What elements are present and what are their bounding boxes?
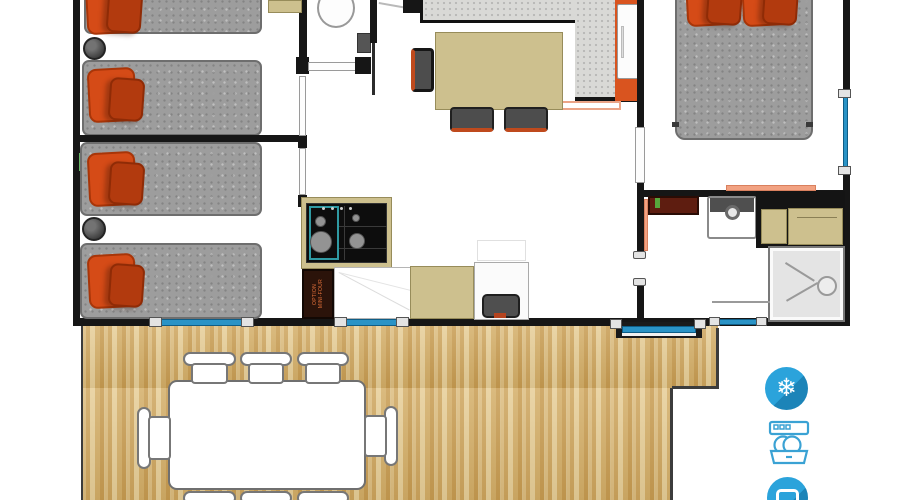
- window-kitchen-cap-r: [396, 317, 409, 327]
- entry-door-swing: [379, 2, 405, 8]
- bedroom1-door: [299, 76, 306, 136]
- vanity-door-left: [761, 209, 787, 244]
- window-bedroom2: [158, 319, 247, 326]
- pillow-bed-4: [88, 252, 146, 312]
- vanity-door-right: [788, 208, 843, 245]
- sink-handle: [494, 313, 506, 318]
- tv-icon: [767, 477, 808, 500]
- vanity-drawer-line: [797, 217, 837, 218]
- bathroom-door-jamb-1: [633, 251, 646, 259]
- master-pillow-left: [686, 0, 744, 30]
- stove-knob-2: [331, 207, 334, 210]
- bathroom-wall-upper: [637, 197, 644, 253]
- pillow-bed-1: [86, 0, 144, 38]
- entrance-sill: [622, 333, 696, 336]
- terrace-table: [168, 380, 366, 490]
- bedroom2-door: [299, 148, 306, 195]
- floor-plan: OPTION MINI-FOUR: [0, 0, 900, 500]
- snowflake-glyph: ❄: [776, 376, 797, 401]
- deck-edge-step: [672, 386, 719, 389]
- window-bathroom-cap-l: [709, 317, 720, 326]
- dining-chair-left: [411, 48, 434, 92]
- fridge-handle: [621, 26, 624, 58]
- deck-edge-left: [81, 326, 83, 500]
- terrace-chair-bottom-2: [240, 491, 292, 500]
- corridor-wall-node: [298, 136, 307, 148]
- master-bed-foot-left: [672, 122, 679, 127]
- stove-knob-1: [322, 207, 325, 210]
- sink-outline: [477, 240, 526, 261]
- burner-4: [349, 233, 365, 249]
- entrance-cap-r: [694, 319, 706, 329]
- dining-chair-bottom-1: [450, 107, 494, 132]
- dishwasher-icon: [766, 420, 812, 465]
- window-bedroom2-cap-l: [149, 317, 162, 327]
- pillow-bed-2: [88, 66, 146, 126]
- window-bathroom: [716, 319, 761, 325]
- terrace-chair-right: [364, 406, 398, 466]
- air-conditioning-icon: ❄: [765, 367, 808, 410]
- deck-edge-right-upper: [716, 328, 719, 388]
- deck-edge-right-lower: [670, 388, 673, 500]
- kitchen-counter-top: [420, 0, 578, 23]
- master-wall-node: [637, 183, 644, 197]
- burner-3: [352, 214, 360, 222]
- bedside-stool-2: [82, 217, 106, 241]
- entrance-cap-l: [610, 319, 622, 329]
- master-door: [635, 127, 645, 183]
- bathroom-shelf-plant: [655, 198, 660, 208]
- wc-sliding-door: [308, 62, 357, 71]
- option-label-1: OPTION: [313, 284, 318, 305]
- dining-table: [435, 32, 563, 110]
- washbasin-faucet: [725, 205, 740, 220]
- terrace-chair-bottom-1: [183, 491, 236, 500]
- hall-wardrobe: [268, 0, 302, 13]
- window-bathroom-cap-r: [756, 317, 767, 326]
- terrace-chair-left: [137, 407, 171, 469]
- wc-partition: [372, 43, 375, 95]
- cooktop-grid-h1: [339, 226, 387, 227]
- bathroom-wall-lower: [637, 286, 644, 320]
- option-label-2: MINI-FOUR: [319, 279, 324, 308]
- window-kitchen: [342, 319, 401, 326]
- kitchen-counter-bottom: [410, 266, 474, 319]
- kitchen-wall-stub: [403, 0, 420, 13]
- shower-drain: [817, 276, 837, 296]
- option-mini-oven: OPTION MINI-FOUR: [302, 269, 334, 319]
- master-bed-foot-right: [806, 122, 813, 127]
- wc-wall-right: [370, 0, 377, 43]
- burner-2: [310, 231, 332, 253]
- shower-screen: [712, 301, 770, 303]
- burner-1: [315, 216, 326, 227]
- cooktop-grid-h2: [339, 248, 387, 249]
- toilet: [317, 0, 355, 28]
- master-pillow-right: [742, 0, 800, 30]
- window-kitchen-cap-l: [334, 317, 347, 327]
- terrace-chair-bottom-3: [297, 491, 349, 500]
- stove-knob-3: [340, 207, 343, 210]
- right-window: [843, 96, 848, 168]
- entrance-sliding-door: [622, 326, 696, 333]
- dining-chair-bottom-2: [504, 107, 548, 132]
- appliance-slot: [334, 267, 411, 319]
- cooktop-grid-v: [344, 206, 345, 260]
- terrace-chair-top-1: [183, 352, 236, 384]
- pillow-bed-3: [88, 150, 146, 210]
- bathroom-door-jamb-2: [633, 278, 646, 286]
- terrace-chair-top-2: [240, 352, 292, 384]
- bedside-stool-1: [83, 37, 106, 60]
- stove-knob-4: [349, 207, 352, 210]
- terrace-chair-top-3: [297, 352, 349, 384]
- window-bedroom2-cap-r: [241, 317, 254, 327]
- toilet-cistern: [357, 33, 371, 53]
- master-wall: [637, 0, 644, 127]
- right-window-cap-bottom: [838, 166, 851, 175]
- right-window-cap-top: [838, 89, 851, 98]
- wc-door-jamb-right: [355, 57, 371, 74]
- bedroom-divider-wall: [80, 135, 307, 142]
